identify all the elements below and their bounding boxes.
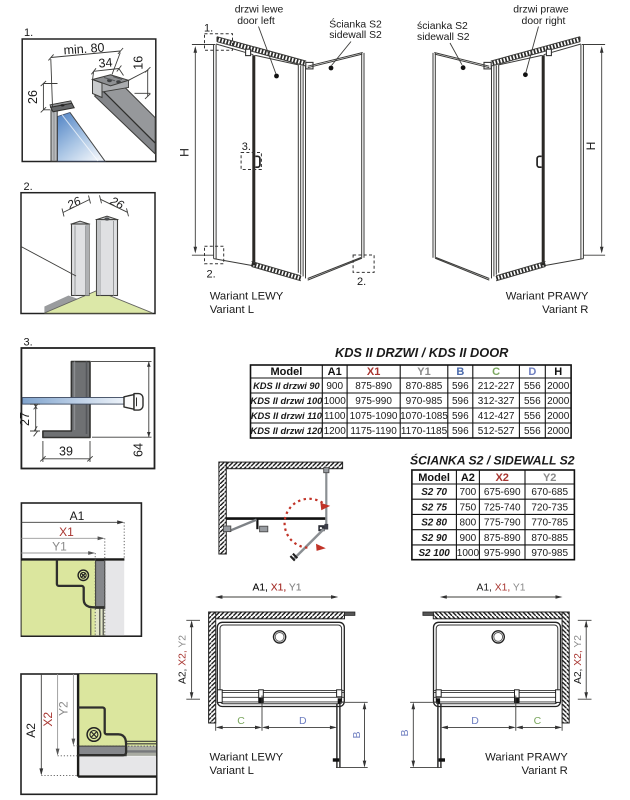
svg-text:Wariant PRAWY: Wariant PRAWY [485, 752, 568, 764]
svg-text:556: 556 [524, 381, 541, 392]
svg-text:KDS II drzwi 100: KDS II drzwi 100 [250, 396, 323, 406]
svg-text:Y1: Y1 [52, 540, 67, 554]
svg-text:64: 64 [132, 443, 146, 457]
svg-text:900: 900 [460, 533, 477, 544]
svg-text:A2, X2, Y2: A2, X2, Y2 [177, 635, 188, 684]
svg-text:1.: 1. [24, 27, 33, 39]
svg-text:H: H [554, 366, 562, 378]
svg-text:512-527: 512-527 [478, 426, 515, 437]
svg-text:312-327: 312-327 [478, 396, 515, 407]
svg-text:drzwi lewe: drzwi lewe [235, 4, 284, 15]
svg-text:675-690: 675-690 [484, 487, 521, 498]
svg-text:C: C [492, 366, 500, 378]
svg-text:725-740: 725-740 [484, 502, 521, 513]
svg-text:1170-1185: 1170-1185 [401, 426, 448, 437]
svg-text:596: 596 [452, 381, 469, 392]
svg-text:H: H [584, 142, 598, 151]
svg-text:D: D [471, 715, 479, 727]
svg-text:875-890: 875-890 [484, 533, 521, 544]
svg-text:D: D [299, 715, 307, 727]
svg-text:2.: 2. [357, 276, 366, 288]
svg-text:800: 800 [460, 518, 477, 529]
svg-text:26: 26 [26, 90, 40, 104]
svg-text:Ścianka S2: Ścianka S2 [329, 17, 382, 30]
svg-text:KDS II drzwi 90: KDS II drzwi 90 [253, 381, 320, 391]
svg-text:C: C [534, 715, 542, 727]
svg-text:Variant L: Variant L [210, 765, 254, 777]
svg-text:KDS II drzwi 110: KDS II drzwi 110 [251, 411, 323, 421]
svg-text:Variant R: Variant R [542, 304, 588, 316]
svg-text:X1: X1 [367, 366, 380, 378]
svg-text:1000: 1000 [324, 396, 347, 407]
svg-text:596: 596 [452, 411, 469, 422]
svg-text:720-735: 720-735 [531, 502, 568, 513]
svg-text:596: 596 [452, 426, 469, 437]
svg-text:A1, X1, Y1: A1, X1, Y1 [476, 583, 525, 594]
svg-text:ścianka S2: ścianka S2 [417, 21, 468, 32]
svg-text:34: 34 [98, 55, 113, 70]
svg-text:A1: A1 [70, 509, 85, 523]
svg-text:C: C [237, 715, 245, 727]
svg-text:770-785: 770-785 [531, 518, 568, 529]
svg-text:KDS II drzwi 120: KDS II drzwi 120 [250, 426, 323, 436]
svg-text:Wariant PRAWY: Wariant PRAWY [506, 291, 589, 303]
svg-text:970-985: 970-985 [406, 396, 443, 407]
svg-text:door left: door left [237, 16, 275, 27]
svg-text:1200: 1200 [324, 426, 347, 437]
svg-text:1000: 1000 [457, 548, 480, 559]
svg-text:X1: X1 [59, 525, 74, 539]
svg-text:556: 556 [524, 411, 541, 422]
svg-text:750: 750 [460, 502, 477, 513]
svg-text:ŚCIANKA S2 / SIDEWALL S2: ŚCIANKA S2 / SIDEWALL S2 [410, 453, 575, 468]
svg-text:Variant R: Variant R [522, 765, 568, 777]
svg-text:S2 100: S2 100 [418, 548, 450, 559]
svg-text:S2 70: S2 70 [421, 487, 447, 498]
svg-text:870-885: 870-885 [406, 381, 443, 392]
svg-text:1070-1085: 1070-1085 [400, 411, 448, 422]
svg-text:1100: 1100 [324, 411, 346, 422]
svg-text:870-885: 870-885 [531, 533, 568, 544]
svg-text:S2 80: S2 80 [421, 518, 447, 529]
svg-text:3.: 3. [24, 337, 33, 349]
svg-text:drzwi prawe: drzwi prawe [513, 4, 569, 15]
svg-text:27: 27 [18, 412, 32, 426]
svg-text:2000: 2000 [547, 381, 570, 392]
svg-text:212-227: 212-227 [478, 381, 515, 392]
svg-text:X2: X2 [41, 712, 55, 727]
svg-text:556: 556 [524, 426, 541, 437]
svg-text:1.: 1. [204, 23, 213, 35]
svg-text:975-990: 975-990 [355, 396, 392, 407]
svg-text:B: B [351, 731, 363, 738]
svg-text:sidewall S2: sidewall S2 [417, 32, 470, 43]
svg-text:B: B [456, 366, 464, 378]
svg-text:975-990: 975-990 [484, 548, 521, 559]
svg-text:775-790: 775-790 [484, 518, 521, 529]
svg-text:875-890: 875-890 [355, 381, 392, 392]
svg-text:670-685: 670-685 [531, 487, 568, 498]
svg-text:Wariant LEWY: Wariant LEWY [210, 752, 284, 764]
svg-text:1075-1090: 1075-1090 [350, 411, 398, 422]
svg-text:B: B [399, 729, 411, 736]
svg-text:412-427: 412-427 [478, 411, 515, 422]
svg-text:min. 80: min. 80 [63, 41, 105, 58]
svg-text:Model: Model [271, 366, 303, 378]
svg-text:S2 75: S2 75 [421, 502, 447, 513]
svg-text:Y2: Y2 [543, 472, 556, 484]
svg-text:X2: X2 [495, 472, 508, 484]
svg-text:S2 90: S2 90 [421, 533, 447, 544]
svg-text:16: 16 [132, 56, 146, 70]
svg-text:2000: 2000 [547, 426, 570, 437]
svg-text:Y2: Y2 [57, 701, 71, 716]
svg-text:Wariant LEWY: Wariant LEWY [210, 291, 284, 303]
svg-text:556: 556 [524, 396, 541, 407]
svg-text:KDS II DRZWI / KDS II DOOR: KDS II DRZWI / KDS II DOOR [335, 345, 509, 360]
svg-text:2000: 2000 [547, 411, 570, 422]
svg-text:A2: A2 [24, 723, 38, 738]
svg-text:1175-1190: 1175-1190 [350, 426, 397, 437]
svg-text:3.: 3. [242, 141, 251, 153]
svg-text:39: 39 [59, 445, 73, 459]
svg-text:596: 596 [452, 396, 469, 407]
svg-text:A2, X2, Y2: A2, X2, Y2 [573, 635, 584, 684]
svg-text:2000: 2000 [547, 396, 570, 407]
svg-text:900: 900 [326, 381, 343, 392]
svg-text:D: D [528, 366, 536, 378]
svg-text:700: 700 [460, 487, 477, 498]
svg-text:A1: A1 [328, 366, 342, 378]
svg-text:A1, X1, Y1: A1, X1, Y1 [252, 583, 301, 594]
svg-text:2.: 2. [24, 181, 33, 193]
svg-text:door right: door right [522, 16, 566, 27]
svg-text:Variant L: Variant L [210, 304, 254, 316]
svg-text:sidewall S2: sidewall S2 [329, 30, 382, 41]
svg-text:2.: 2. [207, 269, 216, 281]
svg-text:Model: Model [418, 472, 450, 484]
svg-text:Y1: Y1 [417, 366, 430, 378]
svg-text:A2: A2 [461, 472, 475, 484]
svg-text:970-985: 970-985 [531, 548, 568, 559]
svg-text:H: H [178, 148, 192, 157]
